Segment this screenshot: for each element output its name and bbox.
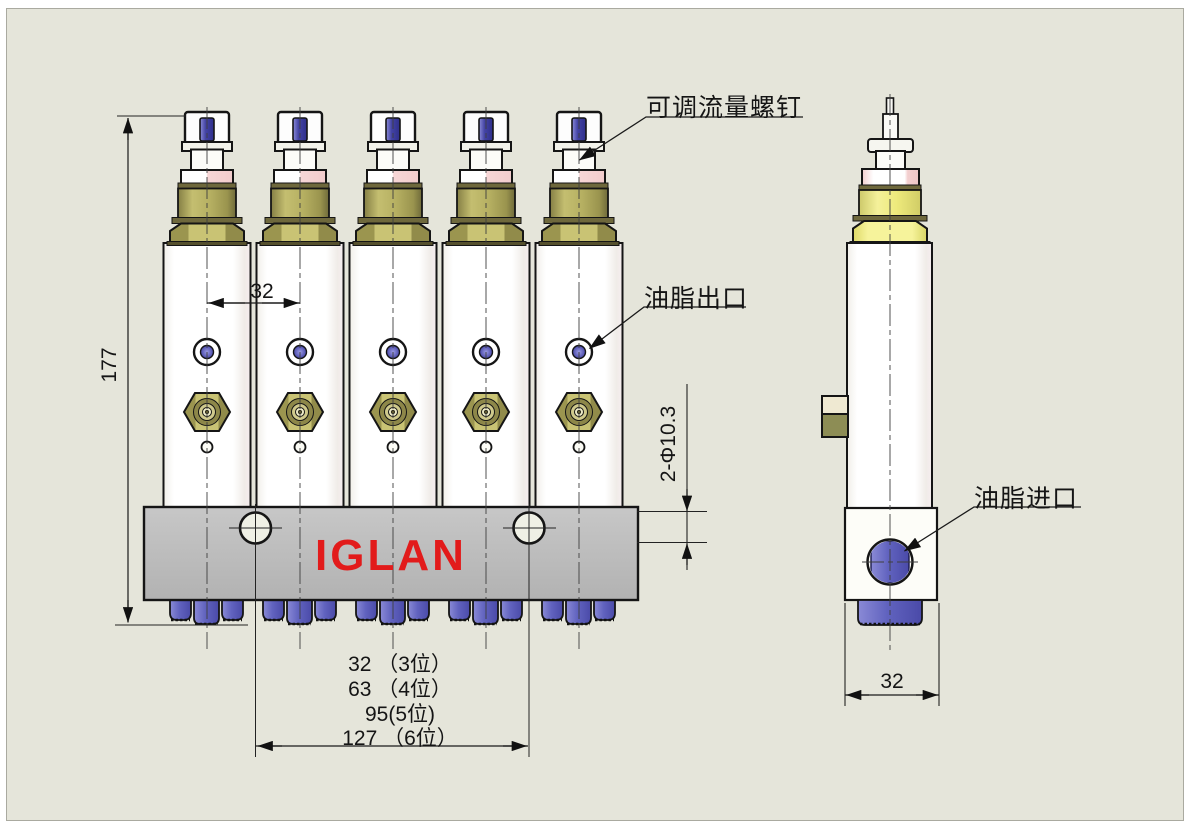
distributor-drawing	[0, 0, 1188, 825]
bottom-fitting-mid	[380, 600, 405, 624]
side-view	[822, 98, 937, 625]
bottom-fitting-mid	[287, 600, 312, 624]
bottom-fitting-left	[356, 600, 377, 620]
side-body	[847, 243, 932, 509]
dim-spacing-6pos: 127 （6位）	[295, 722, 505, 752]
technical-drawing: 可调流量螺钉 油脂出口 油脂进口 177 32 2-Φ10.3 32 32 （3…	[0, 0, 1188, 825]
bottom-fitting-right	[315, 600, 336, 620]
bottom-fitting-mid	[566, 600, 591, 624]
bottom-fitting-mid	[194, 600, 219, 624]
side-spring-collar	[862, 169, 919, 186]
dim-station-pitch: 32	[232, 280, 292, 304]
bottom-fitting-right	[408, 600, 429, 620]
callout-grease-outlet: 油脂出口	[644, 279, 748, 315]
bottom-fitting-right	[501, 600, 522, 620]
callout-adjustable-flow-screw: 可调流量螺钉	[646, 88, 802, 124]
brand-logo: IGLAN	[144, 531, 638, 581]
side-plug-hex	[822, 414, 848, 437]
side-collar	[876, 151, 905, 170]
bottom-fitting-right	[222, 600, 243, 620]
side-plug-cap	[822, 396, 848, 415]
dim-side-width: 32	[862, 670, 922, 694]
bottom-fitting-left	[263, 600, 284, 620]
bottom-fitting-mid	[473, 600, 498, 624]
callout-grease-inlet: 油脂进口	[974, 479, 1078, 515]
bottom-fitting-left	[542, 600, 563, 620]
bottom-fitting-left	[170, 600, 191, 620]
bottom-fitting-right	[594, 600, 615, 620]
dim-mounting-holes: 2-Φ10.3	[657, 388, 681, 500]
bottom-fitting-left	[449, 600, 470, 620]
dim-total-height: 177	[98, 343, 122, 387]
